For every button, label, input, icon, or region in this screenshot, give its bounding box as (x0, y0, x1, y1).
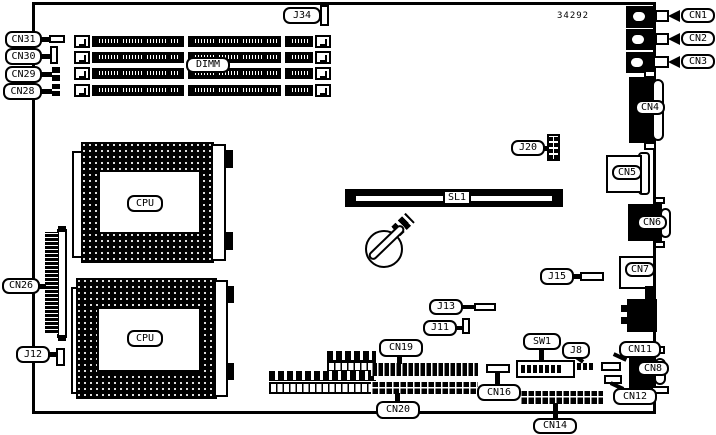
callout-j15: J15 (540, 268, 574, 285)
dimm-clip-icon (315, 51, 331, 64)
connector-cn19 (371, 363, 478, 376)
dimm-label: DIMM (186, 57, 230, 73)
connector-cn29 (52, 67, 60, 73)
dimm-clip-icon (315, 67, 331, 80)
connector-j15 (580, 272, 604, 281)
cpu1-label: CPU (127, 195, 163, 212)
callout-cn11: CN11 (619, 341, 661, 358)
connector-j34 (320, 5, 329, 26)
callout-cn14: CN14 (533, 418, 577, 434)
callout-j11: J11 (423, 320, 457, 336)
callout-cn31: CN31 (5, 31, 42, 48)
connector-cn30 (50, 46, 58, 64)
connector-cn26 (45, 232, 58, 334)
cpu2-label: CPU (127, 330, 163, 347)
connector-cn28 (52, 84, 60, 89)
dimm-clip-icon (74, 51, 90, 64)
callout-sl1: SL1 (443, 190, 471, 205)
callout-sw1: SW1 (523, 333, 561, 350)
connector-j8 (577, 363, 595, 370)
connector-j11 (462, 318, 470, 334)
connector-j12 (56, 348, 65, 366)
callout-cn3: CN3 (681, 54, 715, 69)
callout-cn2: CN2 (681, 31, 715, 46)
callout-cn1: CN1 (681, 8, 715, 23)
callout-cn28: CN28 (3, 83, 42, 100)
connector-cn14 (520, 391, 603, 404)
dimm-clip-icon (315, 35, 331, 48)
callout-cn20: CN20 (376, 401, 420, 419)
dimm-slot (74, 84, 332, 97)
dimm-slot (74, 35, 332, 48)
dimm-clip-icon (315, 84, 331, 97)
callout-cn16: CN16 (477, 384, 521, 401)
pin-header-block (327, 351, 376, 372)
dip-switch-sw1 (516, 360, 575, 378)
motherboard-diagram: 34292 DIMM CN31 CN30 CN29 CN28 (0, 0, 716, 435)
dimm-clip-icon (74, 67, 90, 80)
callout-cn7: CN7 (625, 262, 655, 277)
callout-cn26: CN26 (2, 278, 40, 294)
connector-j13 (474, 303, 496, 311)
dimm-clip-icon (74, 84, 90, 97)
callout-cn6: CN6 (637, 215, 667, 230)
callout-cn19: CN19 (379, 339, 423, 357)
part-number: 34292 (557, 11, 589, 21)
callout-j8: J8 (562, 342, 590, 359)
callout-cn12: CN12 (613, 388, 657, 405)
callout-cn29: CN29 (5, 66, 42, 83)
connector-stack (627, 299, 657, 332)
dimm-clip-icon (74, 35, 90, 48)
callout-cn8: CN8 (637, 361, 669, 376)
callout-j34: J34 (283, 7, 321, 24)
pin-header-block (269, 371, 376, 395)
connector-cn11 (601, 362, 621, 371)
connector-cn31 (49, 35, 65, 43)
callout-cn5: CN5 (612, 165, 642, 180)
callout-j12: J12 (16, 346, 50, 363)
callout-j20: J20 (511, 140, 545, 156)
callout-j13: J13 (429, 299, 463, 315)
callout-cn4: CN4 (635, 100, 665, 115)
connector-cn20 (371, 382, 478, 394)
callout-cn30: CN30 (5, 48, 42, 65)
